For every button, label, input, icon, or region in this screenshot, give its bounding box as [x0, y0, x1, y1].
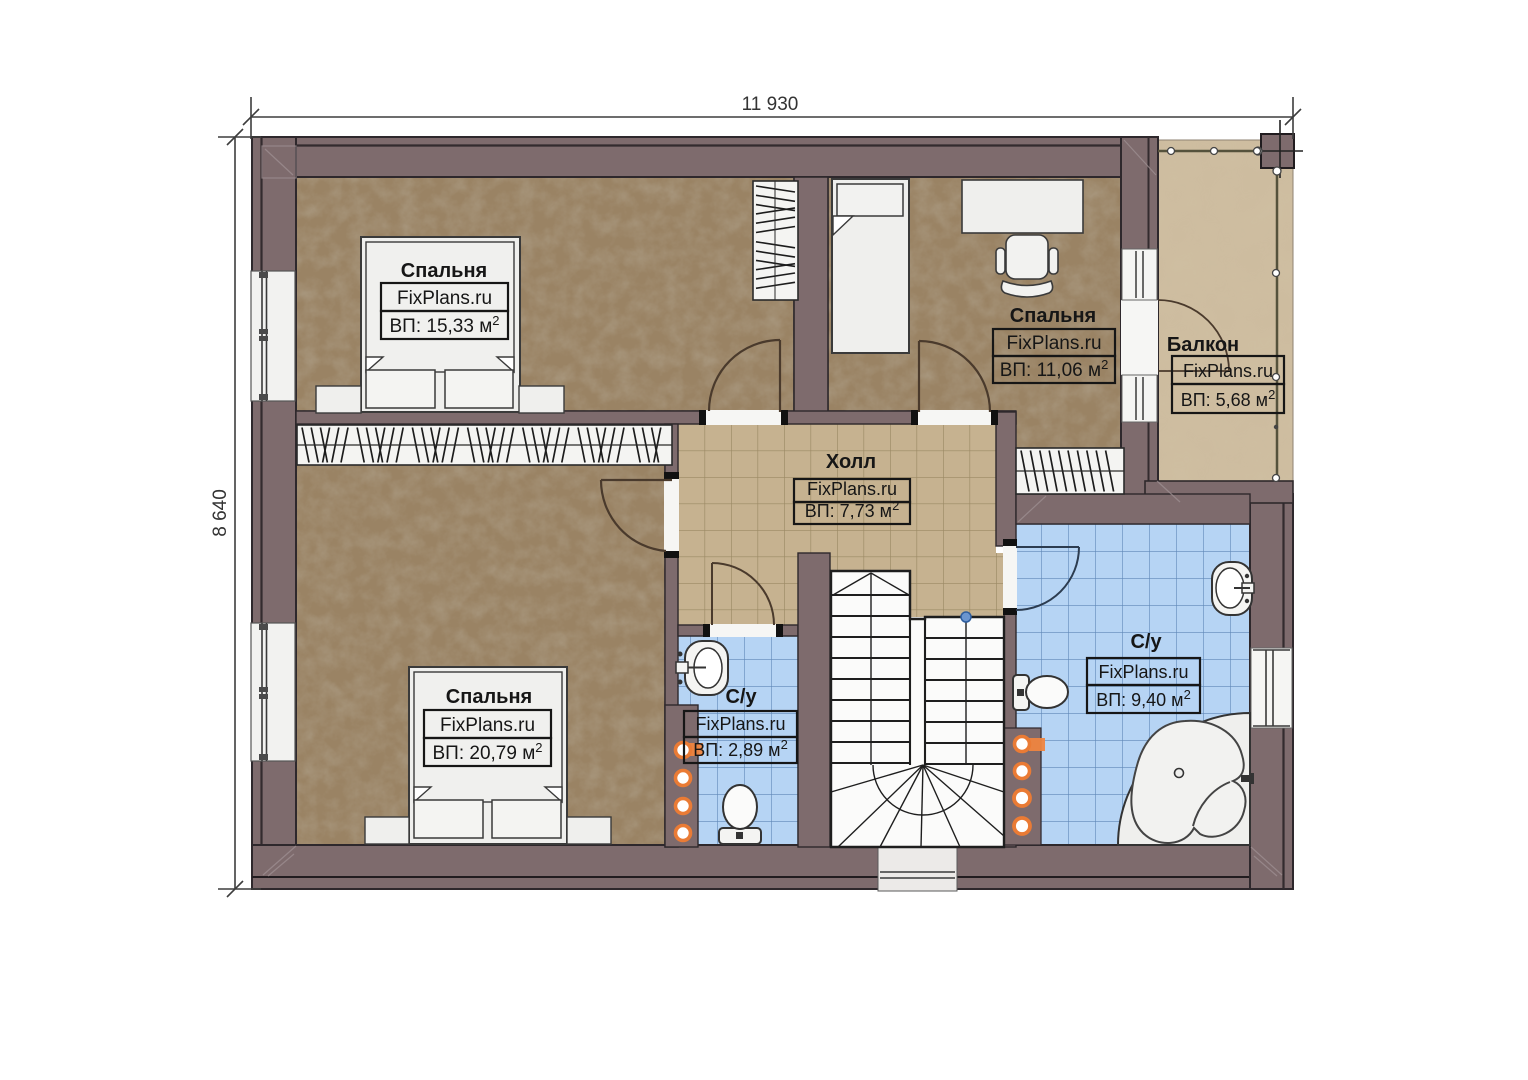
svg-text:FixPlans.ru: FixPlans.ru: [695, 714, 785, 734]
svg-text:ВП: 5,68 м2: ВП: 5,68 м2: [1181, 387, 1276, 410]
svg-text:Спальня: Спальня: [446, 686, 532, 708]
svg-text:11 930: 11 930: [742, 94, 799, 115]
svg-text:ВП: 20,79 м2: ВП: 20,79 м2: [432, 740, 542, 764]
svg-text:Балкон: Балкон: [1167, 334, 1239, 356]
svg-text:ВП: 7,73 м2: ВП: 7,73 м2: [805, 498, 900, 521]
svg-text:Спальня: Спальня: [1010, 305, 1096, 327]
svg-text:FixPlans.ru: FixPlans.ru: [397, 288, 492, 309]
svg-text:FixPlans.ru: FixPlans.ru: [1183, 361, 1273, 381]
svg-text:8 640: 8 640: [210, 489, 231, 537]
svg-text:ВП: 2,89 м2: ВП: 2,89 м2: [693, 737, 788, 760]
svg-text:ВП: 15,33 м2: ВП: 15,33 м2: [389, 313, 499, 337]
svg-text:FixPlans.ru: FixPlans.ru: [1098, 662, 1188, 682]
svg-text:Спальня: Спальня: [401, 260, 487, 282]
svg-text:С/у: С/у: [725, 686, 757, 708]
svg-text:ВП: 9,40 м2: ВП: 9,40 м2: [1096, 687, 1191, 710]
svg-text:ВП: 11,06 м2: ВП: 11,06 м2: [1000, 357, 1109, 381]
svg-text:FixPlans.ru: FixPlans.ru: [1006, 333, 1101, 354]
svg-text:FixPlans.ru: FixPlans.ru: [807, 479, 897, 499]
svg-text:FixPlans.ru: FixPlans.ru: [440, 715, 535, 736]
svg-text:Холл: Холл: [826, 451, 876, 473]
svg-text:С/у: С/у: [1130, 631, 1162, 653]
